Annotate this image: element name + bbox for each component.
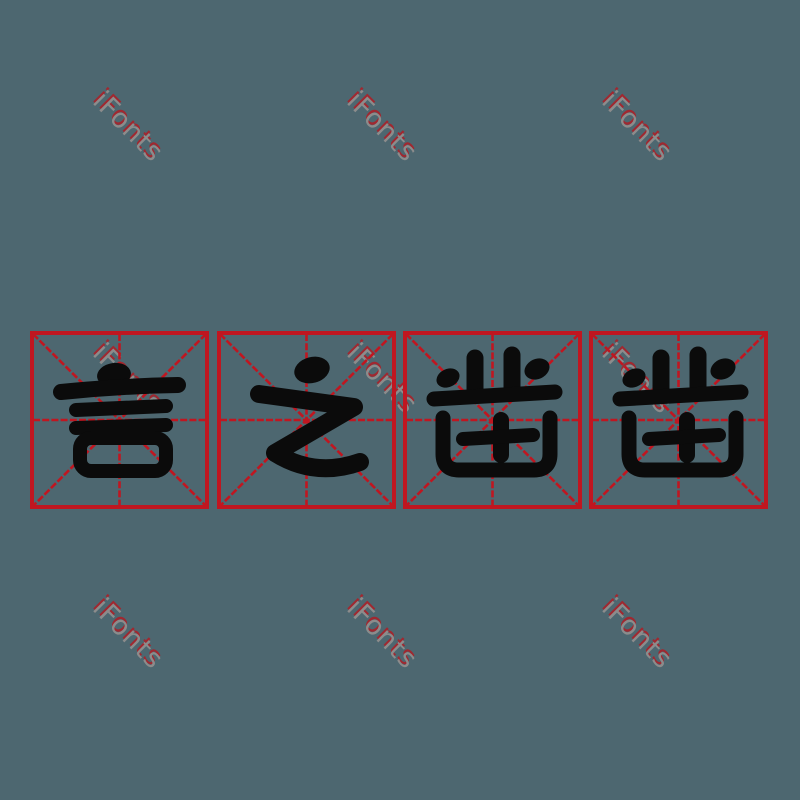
ifonts-watermark: iFonts: [596, 86, 679, 169]
ifonts-watermark: iFonts: [341, 86, 424, 169]
ifonts-watermark: iFonts: [596, 593, 679, 676]
char-cell-1: 言: [30, 331, 209, 509]
ifonts-watermark: iFonts: [87, 86, 170, 169]
glyph-zhi: [217, 331, 396, 509]
char-cell-4: 凿: [589, 331, 768, 509]
glyph-zao-1: [403, 331, 582, 509]
image-canvas: iFonts iFonts iFonts iFonts iFonts iFont…: [0, 0, 800, 800]
glyph-zao-2: [589, 331, 768, 509]
char-cell-2: 之: [217, 331, 396, 509]
glyph-yan: [30, 331, 209, 509]
ifonts-watermark: iFonts: [341, 593, 424, 676]
char-cell-3: 凿: [403, 331, 582, 509]
ifonts-watermark: iFonts: [87, 593, 170, 676]
